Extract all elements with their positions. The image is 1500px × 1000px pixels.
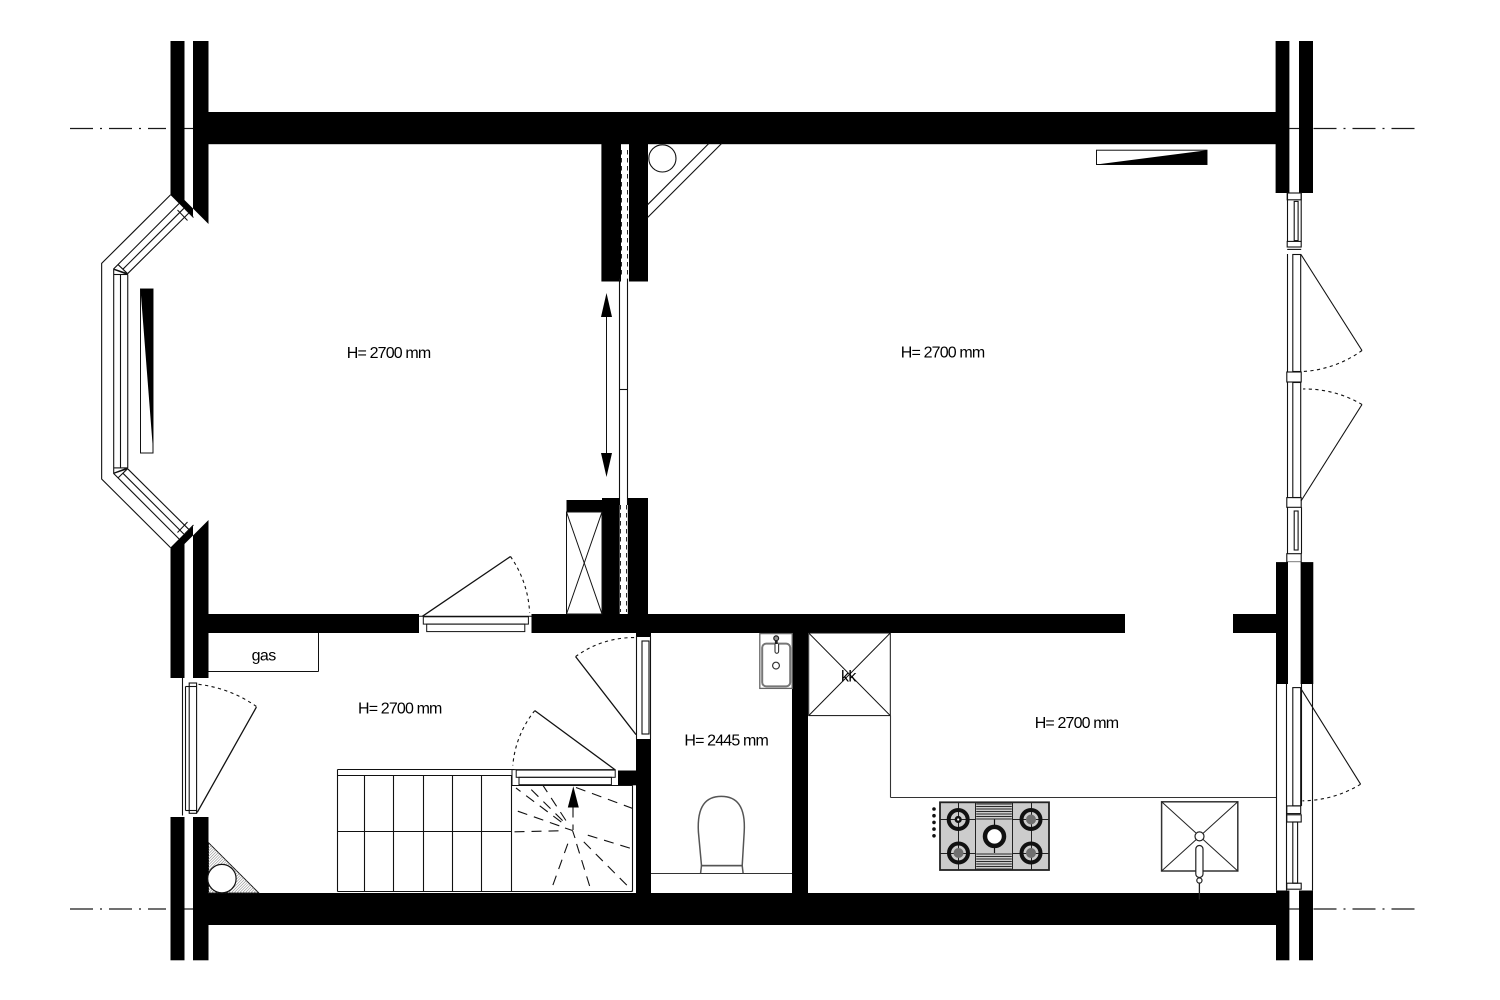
- svg-text:H= 2700 mm: H= 2700 mm: [901, 345, 985, 362]
- svg-text:kk: kk: [841, 669, 857, 686]
- svg-text:H= 2700 mm: H= 2700 mm: [1035, 715, 1119, 732]
- svg-text:H= 2700 mm: H= 2700 mm: [347, 345, 431, 362]
- svg-text:H= 2445 mm: H= 2445 mm: [684, 733, 768, 750]
- svg-text:H= 2700 mm: H= 2700 mm: [358, 700, 442, 717]
- svg-text:gas: gas: [252, 647, 277, 664]
